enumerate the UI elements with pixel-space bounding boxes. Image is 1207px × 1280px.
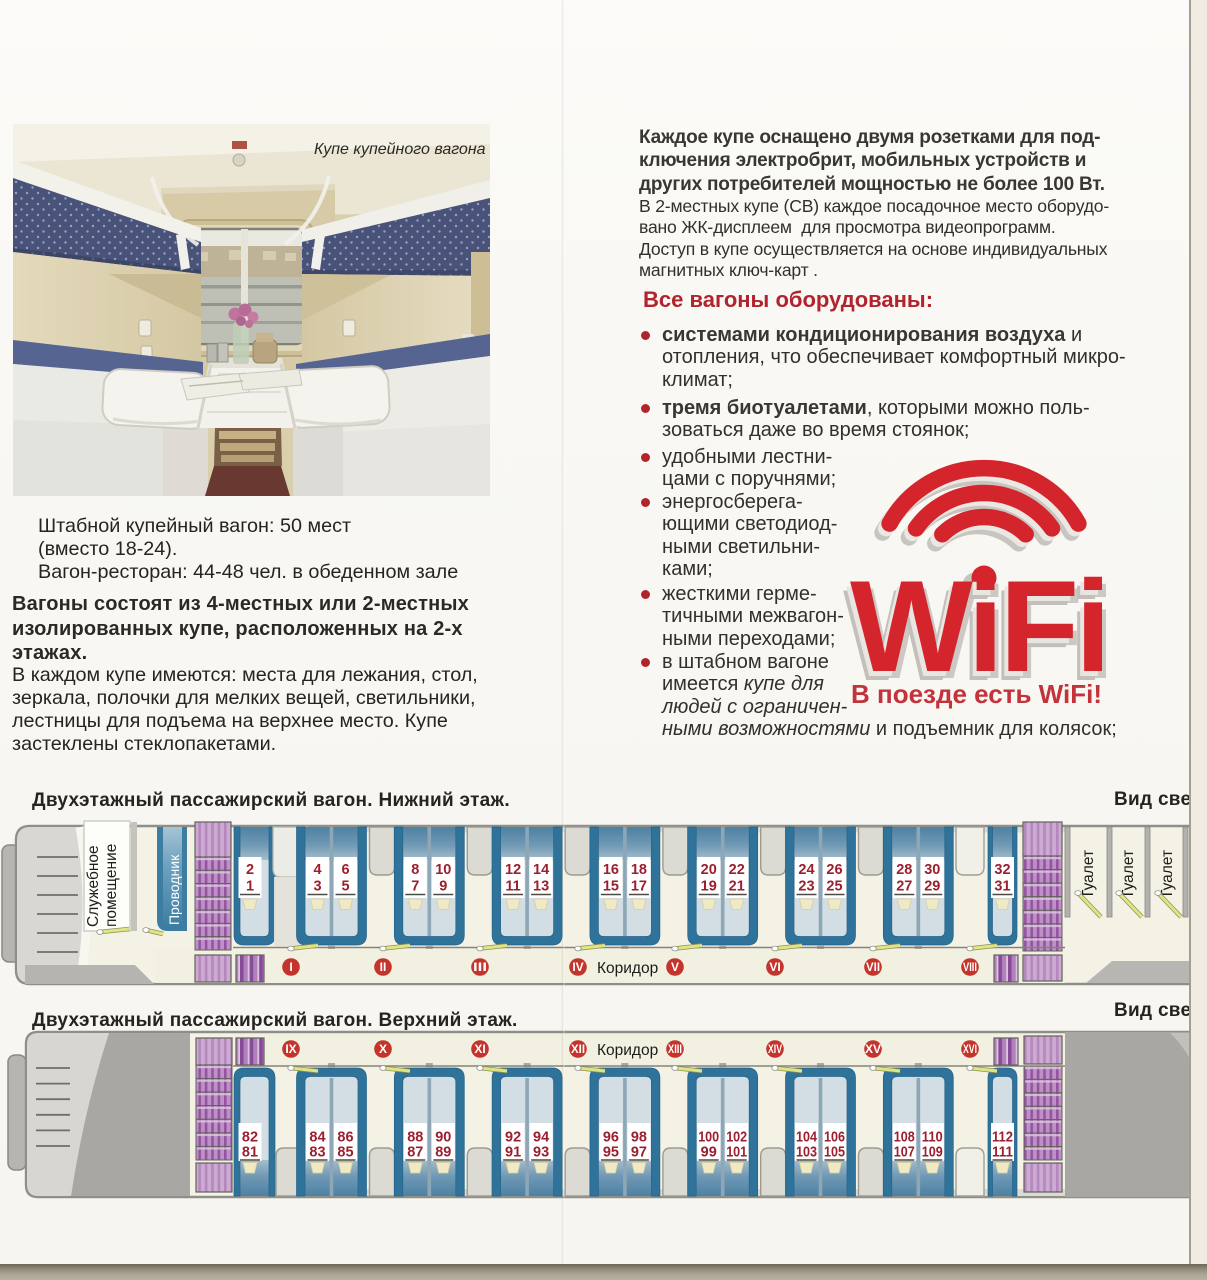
svg-text:12: 12 [505,862,521,878]
svg-text:83: 83 [309,1145,325,1161]
svg-text:XVI: XVI [963,1042,977,1056]
svg-text:81: 81 [242,1145,258,1161]
svg-text:90: 90 [435,1130,451,1146]
svg-text:94: 94 [533,1130,549,1146]
svg-text:99: 99 [701,1145,717,1161]
svg-text:111: 111 [992,1145,1013,1161]
svg-text:22: 22 [729,862,745,878]
svg-text:110: 110 [922,1130,943,1146]
svg-text:112: 112 [992,1130,1013,1146]
svg-text:10: 10 [435,862,451,878]
svg-text:104: 104 [796,1130,817,1146]
svg-text:V: V [671,960,679,974]
svg-text:Коридор: Коридор [597,960,658,977]
svg-text:15: 15 [603,879,619,895]
svg-text:95: 95 [603,1145,619,1161]
svg-text:VI: VI [769,960,780,974]
svg-text:помещение: помещение [103,844,120,927]
svg-text:IX: IX [285,1042,296,1056]
svg-text:9: 9 [439,879,447,895]
svg-text:20: 20 [701,862,717,878]
svg-text:107: 107 [894,1145,915,1161]
svg-text:X: X [379,1042,387,1056]
svg-text:VII: VII [866,960,880,974]
svg-text:Проводник: Проводник [166,854,182,925]
svg-text:89: 89 [435,1145,451,1161]
svg-text:17: 17 [631,879,647,895]
svg-text:2: 2 [246,862,254,878]
svg-text:16: 16 [603,862,619,878]
svg-text:5: 5 [341,879,349,895]
svg-text:105: 105 [824,1145,845,1161]
svg-text:I: I [289,960,292,974]
svg-text:26: 26 [826,862,842,878]
svg-text:XII: XII [571,1042,585,1056]
svg-text:86: 86 [337,1130,353,1146]
svg-text:6: 6 [341,862,349,878]
svg-text:92: 92 [505,1130,521,1146]
svg-text:18: 18 [631,862,647,878]
svg-text:102: 102 [726,1130,747,1146]
svg-text:87: 87 [407,1145,423,1161]
svg-text:103: 103 [796,1145,817,1161]
svg-text:24: 24 [798,862,814,878]
svg-text:30: 30 [924,862,940,878]
svg-text:28: 28 [896,862,912,878]
svg-text:97: 97 [631,1145,647,1161]
svg-text:4: 4 [313,862,321,878]
svg-text:Туалет: Туалет [1159,850,1176,899]
svg-text:XV: XV [865,1042,881,1056]
svg-text:Служебное: Служебное [85,845,102,927]
svg-text:VIII: VIII [963,960,977,974]
svg-text:11: 11 [505,879,520,895]
svg-text:93: 93 [533,1145,549,1161]
svg-text:8: 8 [411,862,419,878]
svg-text:27: 27 [896,879,912,895]
svg-text:IV: IV [572,960,583,974]
svg-text:96: 96 [603,1130,619,1146]
svg-text:109: 109 [922,1145,943,1161]
svg-text:29: 29 [924,879,940,895]
svg-text:108: 108 [894,1130,915,1146]
svg-text:XIV: XIV [768,1042,782,1056]
svg-text:XI: XI [474,1042,485,1056]
svg-text:21: 21 [729,879,745,895]
svg-text:98: 98 [631,1130,647,1146]
svg-text:91: 91 [505,1145,521,1161]
svg-text:3: 3 [313,879,321,895]
svg-text:19: 19 [701,879,717,895]
svg-text:Туалет: Туалет [1120,850,1137,899]
svg-text:88: 88 [407,1130,423,1146]
svg-text:III: III [473,960,487,974]
svg-text:1: 1 [246,879,254,895]
svg-text:13: 13 [533,879,549,895]
svg-text:II: II [380,960,387,974]
svg-text:32: 32 [994,862,1010,878]
svg-text:101: 101 [726,1145,747,1161]
svg-text:Коридор: Коридор [597,1042,658,1059]
svg-text:14: 14 [533,862,549,878]
svg-text:85: 85 [337,1145,353,1161]
svg-text:31: 31 [994,879,1010,895]
svg-text:25: 25 [826,879,842,895]
svg-text:7: 7 [411,879,419,895]
svg-text:82: 82 [242,1130,258,1146]
svg-text:84: 84 [309,1130,325,1146]
svg-text:106: 106 [824,1130,845,1146]
svg-text:23: 23 [798,879,814,895]
svg-text:XIII: XIII [668,1042,682,1056]
svg-text:Туалет: Туалет [1080,850,1097,899]
svg-text:100: 100 [698,1130,719,1146]
